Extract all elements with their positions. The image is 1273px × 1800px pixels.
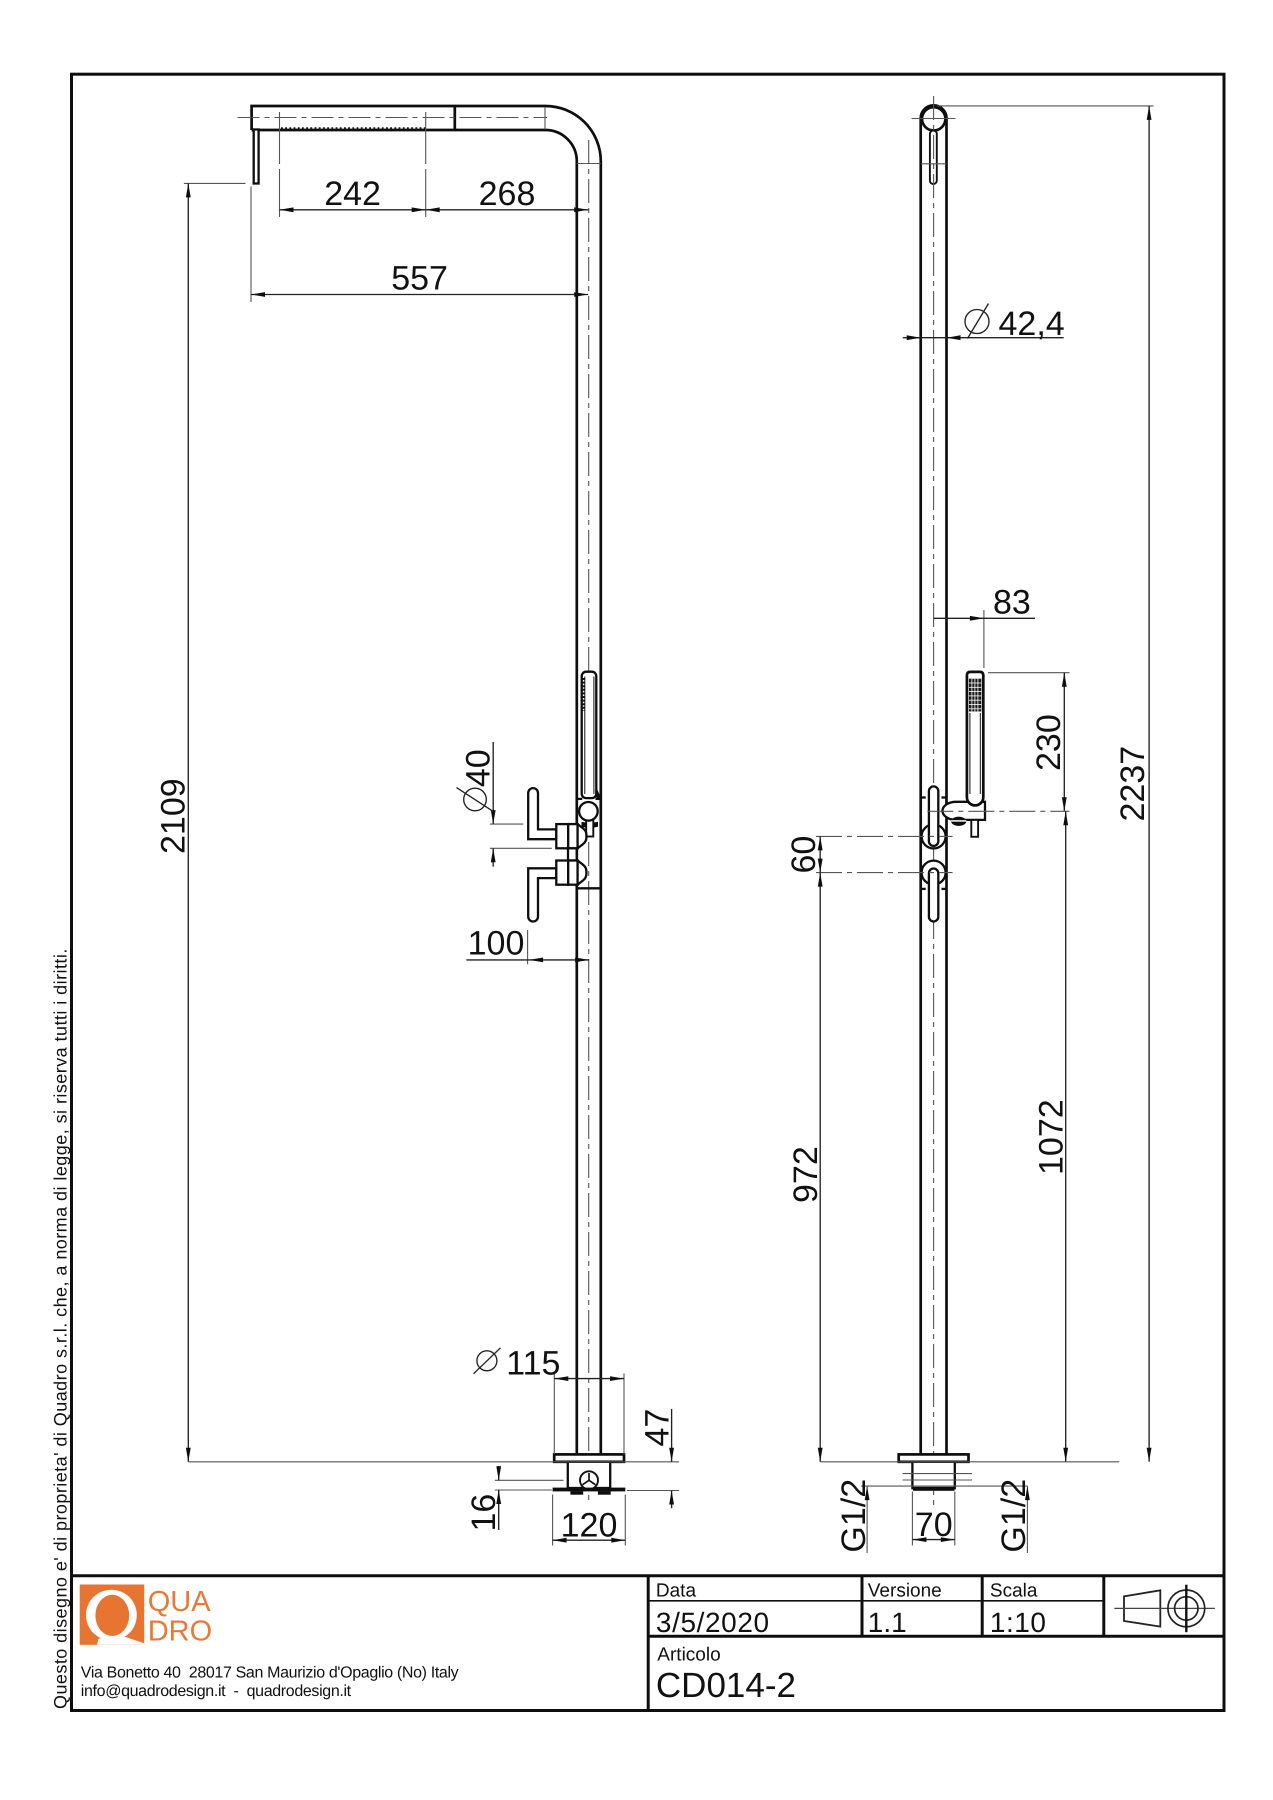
svg-text:115: 115 — [506, 1344, 560, 1382]
svg-text:Scala: Scala — [990, 1580, 1038, 1601]
svg-text:242: 242 — [324, 175, 381, 213]
svg-text:Via Bonetto 40 28017 San Maur: Via Bonetto 40 28017 San Maurizio d'Opag… — [81, 1664, 459, 1681]
svg-text:16: 16 — [465, 1494, 503, 1532]
svg-text:972: 972 — [787, 1146, 825, 1203]
svg-text:2109: 2109 — [155, 778, 193, 854]
svg-text:QUA: QUA — [148, 1586, 212, 1618]
svg-text:83: 83 — [993, 583, 1031, 621]
svg-text:1:10: 1:10 — [990, 1607, 1047, 1638]
svg-text:1.1: 1.1 — [868, 1607, 907, 1638]
svg-text:40: 40 — [460, 749, 498, 787]
svg-text:557: 557 — [391, 260, 448, 298]
svg-text:DRO: DRO — [148, 1615, 212, 1647]
svg-text:G1/2: G1/2 — [995, 1479, 1033, 1553]
svg-text:230: 230 — [1030, 714, 1068, 771]
svg-text:120: 120 — [561, 1506, 618, 1544]
svg-text:60: 60 — [785, 836, 823, 874]
svg-text:2237: 2237 — [1114, 746, 1152, 822]
svg-text:47: 47 — [638, 1409, 676, 1447]
svg-text:Articolo: Articolo — [657, 1645, 720, 1666]
svg-text:1072: 1072 — [1033, 1099, 1071, 1175]
svg-text:100: 100 — [468, 925, 525, 963]
svg-text:42,4: 42,4 — [999, 305, 1065, 343]
svg-text:268: 268 — [479, 175, 536, 213]
svg-text:Questo disegno e' di proprieta: Questo disegno e' di proprieta' di Quadr… — [51, 948, 71, 1709]
svg-text:info@quadrodesign.it - quadr: info@quadrodesign.it - quadrodesign.it — [81, 1683, 352, 1700]
svg-text:Data: Data — [656, 1580, 697, 1601]
svg-text:G1/2: G1/2 — [835, 1479, 873, 1553]
svg-text:Versione: Versione — [868, 1580, 942, 1601]
svg-text:3/5/2020: 3/5/2020 — [656, 1607, 770, 1638]
svg-text:70: 70 — [915, 1506, 953, 1544]
svg-text:CD014-2: CD014-2 — [656, 1666, 796, 1705]
